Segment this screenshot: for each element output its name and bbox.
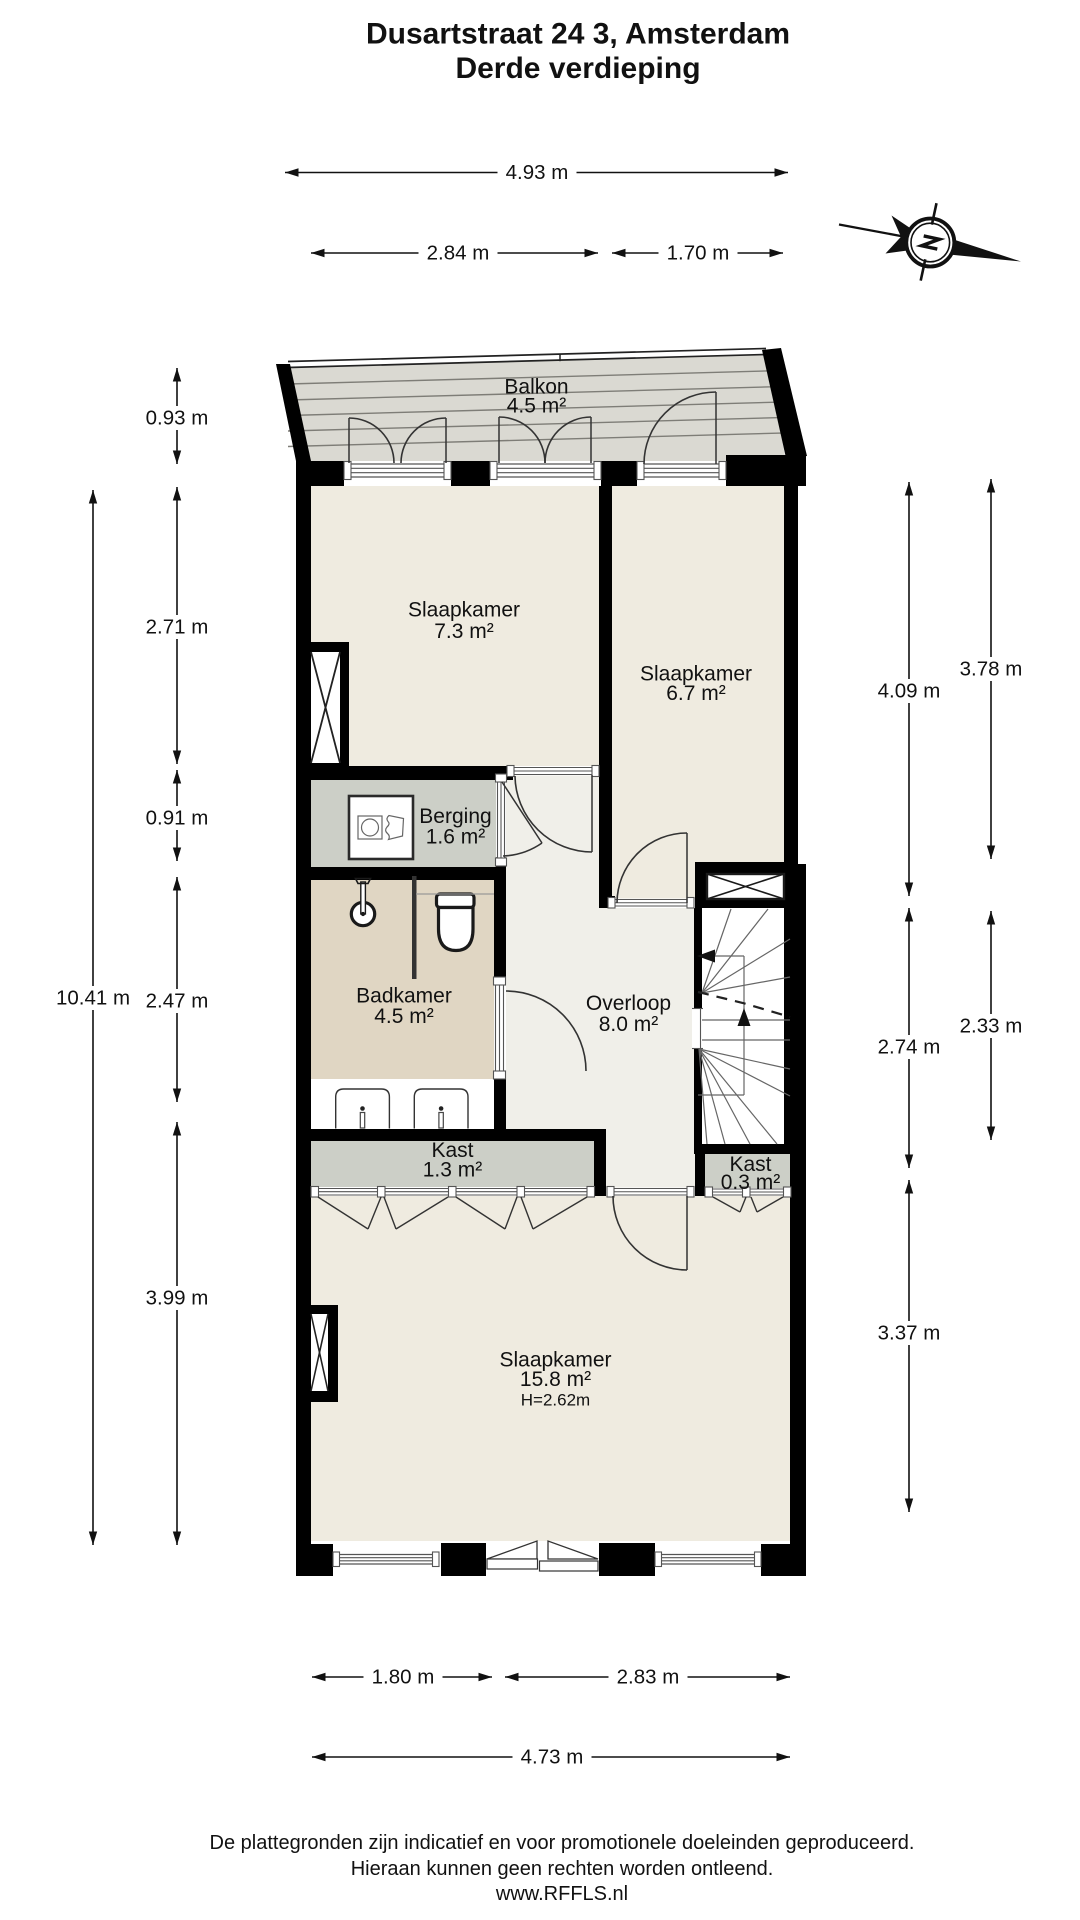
svg-text:7.3 m²: 7.3 m² bbox=[434, 620, 494, 643]
svg-text:1.70 m: 1.70 m bbox=[667, 242, 730, 265]
svg-text:10.41 m: 10.41 m bbox=[56, 987, 130, 1010]
svg-text:15.8 m²: 15.8 m² bbox=[520, 1368, 591, 1391]
svg-text:1.6 m²: 1.6 m² bbox=[426, 826, 486, 849]
svg-text:Overloop: Overloop bbox=[586, 992, 671, 1015]
svg-text:2.84 m: 2.84 m bbox=[427, 242, 490, 265]
svg-text:2.33 m: 2.33 m bbox=[960, 1015, 1023, 1038]
svg-text:2.71 m: 2.71 m bbox=[146, 616, 209, 639]
svg-text:0.3 m²: 0.3 m² bbox=[721, 1171, 781, 1194]
svg-text:3.99 m: 3.99 m bbox=[146, 1287, 209, 1310]
svg-text:8.0 m²: 8.0 m² bbox=[599, 1013, 659, 1036]
svg-text:2.74 m: 2.74 m bbox=[878, 1036, 941, 1059]
svg-text:1.80 m: 1.80 m bbox=[372, 1666, 435, 1689]
svg-text:H=2.62m: H=2.62m bbox=[521, 1391, 590, 1410]
svg-text:2.47 m: 2.47 m bbox=[146, 990, 209, 1013]
svg-text:Hieraan kunnen geen rechten wo: Hieraan kunnen geen rechten worden ontle… bbox=[351, 1858, 774, 1880]
svg-text:4.93 m: 4.93 m bbox=[506, 161, 569, 184]
svg-text:4.09 m: 4.09 m bbox=[878, 680, 941, 703]
svg-text:0.91 m: 0.91 m bbox=[146, 807, 209, 830]
svg-text:4.5 m²: 4.5 m² bbox=[374, 1005, 434, 1028]
svg-text:www.RFFLS.nl: www.RFFLS.nl bbox=[495, 1883, 628, 1905]
svg-text:1.3 m²: 1.3 m² bbox=[423, 1159, 483, 1182]
svg-text:2.83 m: 2.83 m bbox=[617, 1666, 680, 1689]
svg-text:3.78 m: 3.78 m bbox=[960, 658, 1023, 681]
svg-text:3.37 m: 3.37 m bbox=[878, 1322, 941, 1345]
svg-text:4.5 m²: 4.5 m² bbox=[507, 395, 567, 418]
svg-text:Derde verdieping: Derde verdieping bbox=[455, 52, 700, 85]
svg-text:6.7 m²: 6.7 m² bbox=[666, 682, 726, 705]
svg-text:4.73 m: 4.73 m bbox=[521, 1746, 584, 1769]
svg-text:0.93 m: 0.93 m bbox=[146, 407, 209, 430]
svg-text:Slaapkamer: Slaapkamer bbox=[408, 599, 520, 622]
svg-text:Dusartstraat 24 3, Amsterdam: Dusartstraat 24 3, Amsterdam bbox=[366, 18, 790, 51]
svg-text:De plattegronden zijn indicati: De plattegronden zijn indicatief en voor… bbox=[210, 1832, 915, 1854]
